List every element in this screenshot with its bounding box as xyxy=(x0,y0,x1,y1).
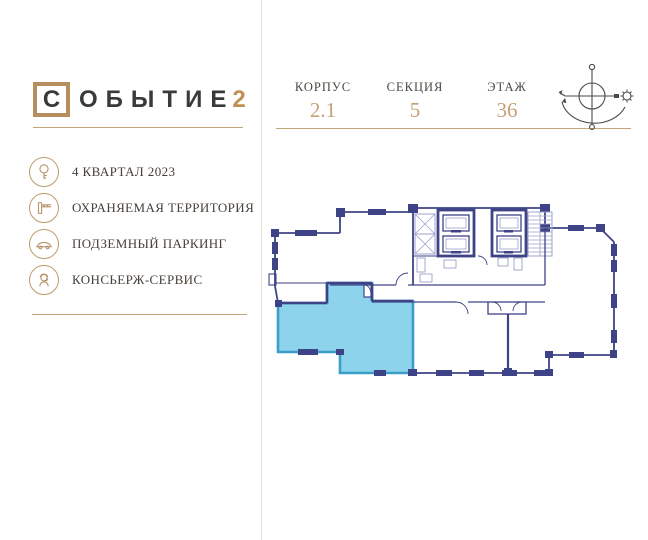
field-sektsiya-value: 5 xyxy=(369,98,461,123)
logo-underline xyxy=(33,127,243,128)
features-underline xyxy=(32,314,247,315)
listing-floorplan-image: { "brand": { "boxed_letter": "С", "name_… xyxy=(0,0,648,540)
barrier-icon xyxy=(29,193,59,223)
logo-number: 2 xyxy=(232,86,245,114)
feature-completion-label: 4 КВАРТАЛ 2023 xyxy=(72,164,175,180)
vertical-divider xyxy=(261,0,262,540)
field-korpus-value: 2.1 xyxy=(277,98,369,123)
concierge-icon xyxy=(29,265,59,295)
feature-concierge: КОНСЬЕРЖ-СЕРВИС xyxy=(29,266,254,294)
key-icon xyxy=(29,157,59,187)
utility-fixtures xyxy=(413,256,526,282)
field-etazh-label: ЭТАЖ xyxy=(461,80,553,95)
field-sektsiya: СЕКЦИЯ 5 xyxy=(369,80,461,123)
feature-security: ОХРАНЯЕМАЯ ТЕРРИТОРИЯ xyxy=(29,194,254,222)
elevator-core xyxy=(415,210,526,256)
sun-orientation-compass-icon xyxy=(552,60,640,143)
feature-parking: ПОДЗЕМНЫЙ ПАРКИНГ xyxy=(29,230,254,258)
feature-concierge-label: КОНСЬЕРЖ-СЕРВИС xyxy=(72,272,203,288)
selected-apartment xyxy=(275,283,417,376)
unit-info-header: КОРПУС 2.1 СЕКЦИЯ 5 ЭТАЖ 36 xyxy=(277,80,553,123)
field-korpus: КОРПУС 2.1 xyxy=(277,80,369,123)
field-etazh: ЭТАЖ 36 xyxy=(461,80,553,123)
feature-parking-label: ПОДЗЕМНЫЙ ПАРКИНГ xyxy=(72,236,226,252)
features-list: 4 КВАРТАЛ 2023 ОХРАНЯЕМАЯ ТЕРРИТОРИЯ П xyxy=(29,158,254,302)
feature-security-label: ОХРАНЯЕМАЯ ТЕРРИТОРИЯ xyxy=(72,200,254,216)
floor-plan xyxy=(268,190,644,391)
stairwell xyxy=(528,212,552,256)
field-sektsiya-label: СЕКЦИЯ xyxy=(369,80,461,95)
logo-letter-box: С xyxy=(33,82,70,117)
feature-completion: 4 КВАРТАЛ 2023 xyxy=(29,158,254,186)
field-etazh-value: 36 xyxy=(461,98,553,123)
brand-logo: С ОБЫТИЕ 2 xyxy=(33,82,246,117)
field-korpus-label: КОРПУС xyxy=(277,80,369,95)
logo-boxed-letter: С xyxy=(43,86,60,114)
logo-text: ОБЫТИЕ xyxy=(79,86,234,114)
car-icon xyxy=(29,229,59,259)
